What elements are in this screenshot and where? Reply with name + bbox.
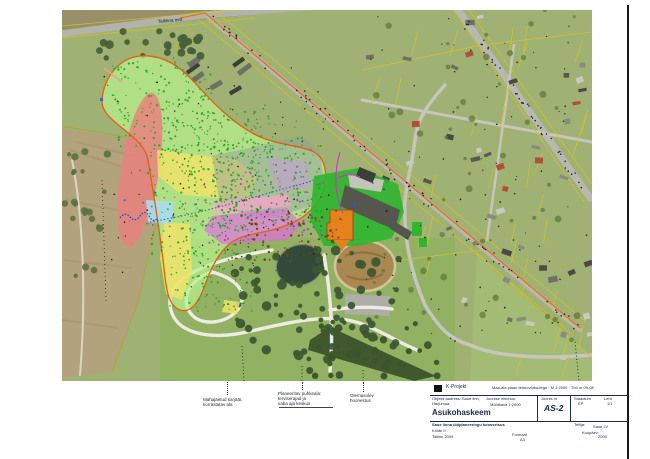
aerial-map: Tallinna mnt xyxy=(62,10,592,381)
annotation-note-3: Olemasolev hoonestus xyxy=(350,393,374,403)
mid-small-1: Joonise nimetus: xyxy=(486,397,516,402)
green-lot-2 xyxy=(419,238,427,247)
format-value: A3 xyxy=(520,438,525,443)
drawing-sheet: Tallinna mnt Mahajäetud karjäär, korrast… xyxy=(0,0,650,459)
company-logo xyxy=(434,385,442,392)
blue-marker xyxy=(353,203,356,206)
green-lot-1 xyxy=(412,222,422,236)
note-line: vaba aja keskus xyxy=(278,401,321,406)
titleblock-top-right-text: Maa-ala plaan tehnovõrkudega · M 1:2000 … xyxy=(492,386,594,391)
note-line: korrastatav ala xyxy=(203,402,243,407)
note-line: hoonestus xyxy=(350,398,374,403)
orange-building xyxy=(327,210,353,240)
sheet-value: 1/1 xyxy=(607,402,613,407)
company-name: K-Projekt xyxy=(446,385,467,391)
titleblock-divider xyxy=(537,395,538,421)
volume-line: Köide II xyxy=(432,429,446,434)
zone-yellow-tip xyxy=(222,300,240,314)
client-value: Saue LV xyxy=(593,425,608,430)
leader-line-3 xyxy=(363,382,364,392)
titleblock-divider xyxy=(570,395,571,421)
date-value: 2009 xyxy=(598,435,607,440)
title-block: K-Projekt Maa-ala plaan tehnovõrkudega ·… xyxy=(430,382,628,448)
annotation-note-2: Planeeritav puhkeala: terviserajad ja va… xyxy=(278,391,321,406)
project-name: Saue linna üldplaneeringu koosseisus xyxy=(432,423,505,428)
stage-value: EP xyxy=(578,402,583,407)
leader-line-2 xyxy=(302,382,303,390)
drawing-number: AS-2 xyxy=(544,403,563,413)
mid-small-2: Mõõtkava 1:2000 xyxy=(490,403,521,408)
client-label: Tellija: xyxy=(574,423,585,428)
drawing-number-label: Joonis nr xyxy=(541,397,557,402)
year-line: Tallinn 2009 xyxy=(432,435,453,440)
date-label: Kuupäev: xyxy=(582,431,599,436)
leader-line-1 xyxy=(227,382,228,395)
drawing-title: Asukohaskeem xyxy=(432,408,491,417)
annotation-note-1: Mahajäetud karjäär, korrastatav ala xyxy=(203,397,243,407)
blue-marker-small xyxy=(100,98,103,101)
annotation-underline xyxy=(279,407,333,408)
address-line-2: Harjumaa xyxy=(432,402,449,407)
